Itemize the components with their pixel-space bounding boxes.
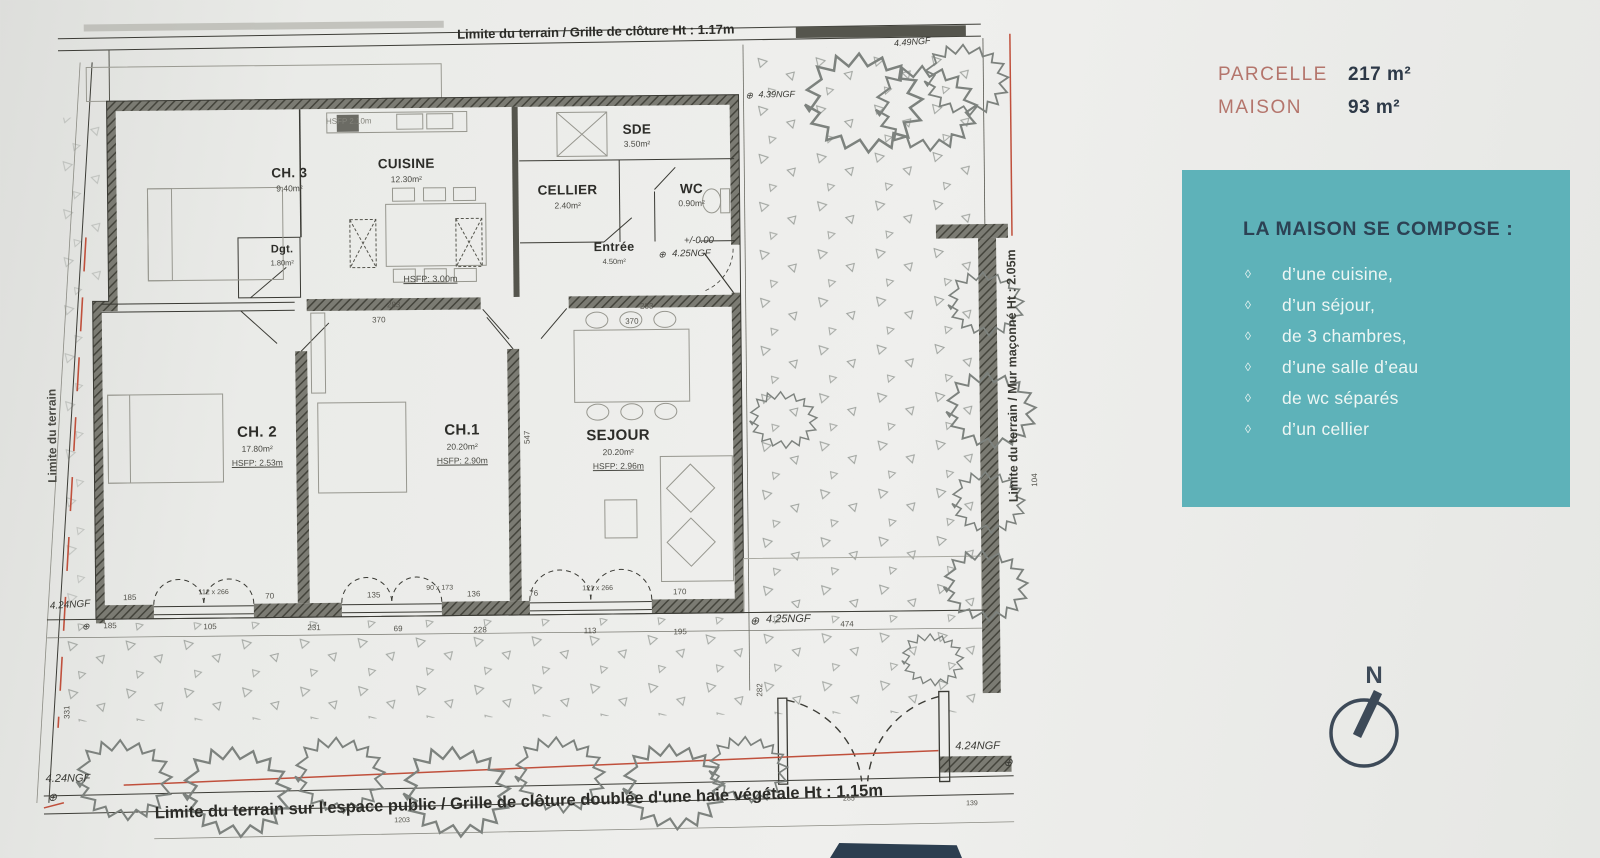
diamond-bullet-icon: ◊ [1245, 329, 1251, 343]
room-label-sejour: SEJOUR [586, 427, 650, 445]
scanned-plan-page: Limite du terrain / Grille de clôture Ht… [0, 0, 1600, 858]
dim: 139 [966, 800, 978, 807]
ngf-marker-439: 4.39NGF [758, 89, 795, 99]
dim: 69 [394, 624, 403, 633]
stat-label-maison: MAISON [1218, 97, 1302, 119]
dim: 135 [367, 590, 380, 599]
compose-panel: LA MAISON SE COMPOSE : ◊ d’une cuisine, … [1182, 170, 1570, 507]
room-area-cuisine: 12.30m² [391, 174, 422, 184]
room-area-entree: 4.50m² [603, 257, 626, 266]
stat-label-parcelle: PARCELLE [1218, 64, 1328, 86]
dim: 113 [584, 626, 597, 635]
ngf-symbol-439: ⊕ [745, 90, 753, 101]
ngf-symbol-425: ⊕ [750, 614, 759, 627]
dim: 136 [467, 589, 480, 598]
entree-ngf: 4.25NGF [672, 248, 711, 259]
diamond-bullet-icon: ◊ [1245, 391, 1251, 405]
diamond-bullet-icon: ◊ [1245, 422, 1251, 436]
room-area-wc: 0.90m² [678, 198, 705, 208]
diamond-bullet-icon: ◊ [1245, 298, 1251, 312]
room-area-dgt: 1.80m² [271, 258, 294, 267]
ngf-marker-424-gate: 4.24NGF [955, 740, 1000, 752]
dim: 1203 [394, 817, 410, 824]
room-label-dgt: Dgt. [271, 243, 294, 255]
room-area-ch1: 20.20m² [447, 441, 478, 451]
compass-icon [1320, 684, 1420, 784]
room-hsfp-sejour: HSFP: 2.96m [593, 461, 644, 472]
list-item-label: de 3 chambres, [1282, 326, 1407, 347]
dim: 283 [640, 302, 653, 311]
dim: 104 [1030, 473, 1039, 486]
dim: 170 [673, 587, 686, 596]
compose-title: LA MAISON SE COMPOSE : [1243, 218, 1513, 241]
room-label-wc: WC [680, 181, 703, 196]
list-item-label: d’un cellier [1282, 419, 1369, 440]
dim: 90 x 173 [426, 585, 453, 592]
boundary-label-left: Limite du terrain [45, 389, 60, 483]
room-area-ch2: 17.80m² [242, 444, 273, 454]
list-item-label: de wc séparés [1282, 388, 1399, 409]
room-area-ch3: 9.40m² [276, 183, 303, 193]
ngf-symbol-424-bottom: ⊕ [48, 791, 57, 804]
hsfp-kitchen: HSFP 2.10m [326, 116, 372, 125]
dim: 121 x 266 [582, 585, 613, 592]
room-label-sde: SDE [622, 122, 651, 137]
dim: 105 [203, 622, 216, 631]
dim: 285 [843, 795, 855, 802]
room-label-cuisine: CUISINE [378, 156, 435, 172]
ngf-symbol-424-left: ⊕ [82, 621, 90, 632]
room-label-ch2: CH. 2 [237, 423, 277, 440]
stat-value-parcelle: 217 m² [1348, 64, 1411, 86]
room-area-sde: 3.50m² [624, 139, 651, 149]
dim: 231 [307, 623, 320, 632]
diamond-bullet-icon: ◊ [1245, 360, 1251, 374]
list-item-label: d’une salle d’eau [1282, 357, 1418, 378]
ngf-marker-424-bottom: 4.24NGF [46, 772, 91, 784]
dim: 282 [755, 683, 764, 696]
room-label-ch1: CH.1 [444, 421, 480, 438]
room-hsfp-ch1: HSFP: 2.90m [437, 455, 488, 466]
entree-level: +/-0.00 [684, 235, 714, 246]
dim: 76 [529, 589, 538, 598]
room-label-cellier: CELLIER [537, 182, 597, 198]
room-label-entree: Entrée [594, 240, 635, 254]
hsfp-upper: HSFP: 3.00m [403, 274, 457, 285]
ngf-symbol-424-gate: ⊕ [1003, 756, 1012, 769]
dim: 474 [840, 619, 853, 628]
list-item-label: d’une cuisine, [1282, 264, 1393, 285]
dim: 228 [473, 625, 486, 634]
dim: 195 [673, 627, 686, 636]
dim: 370 [625, 317, 638, 326]
dim: 112 x 266 [199, 589, 229, 596]
diamond-bullet-icon: ◊ [1245, 267, 1251, 281]
dim: 331 [62, 705, 71, 718]
ngf-marker-425: 4.25NGF [766, 613, 811, 625]
plan-drawing [0, 0, 1064, 858]
stat-value-maison: 93 m² [1348, 97, 1400, 119]
dim: 283 [387, 300, 400, 309]
dim: 185 [103, 621, 116, 630]
room-hsfp-ch2: HSFP: 2.53m [232, 457, 283, 468]
room-label-ch3: CH. 3 [271, 165, 307, 180]
dim: 185 [123, 593, 136, 602]
boundary-label-right: Limite du terrain / Mur maçonné Ht : 2.0… [1004, 249, 1021, 502]
room-area-sejour: 20.20m² [603, 447, 634, 457]
dim: 547 [523, 431, 532, 444]
partial-logo-shape [830, 843, 962, 858]
entree-ngf-symbol: ⊕ [658, 249, 666, 260]
room-area-cellier: 2.40m² [554, 200, 581, 210]
list-item-label: d’un séjour, [1282, 295, 1375, 316]
dim: 370 [372, 315, 385, 324]
dim: 70 [265, 592, 274, 601]
